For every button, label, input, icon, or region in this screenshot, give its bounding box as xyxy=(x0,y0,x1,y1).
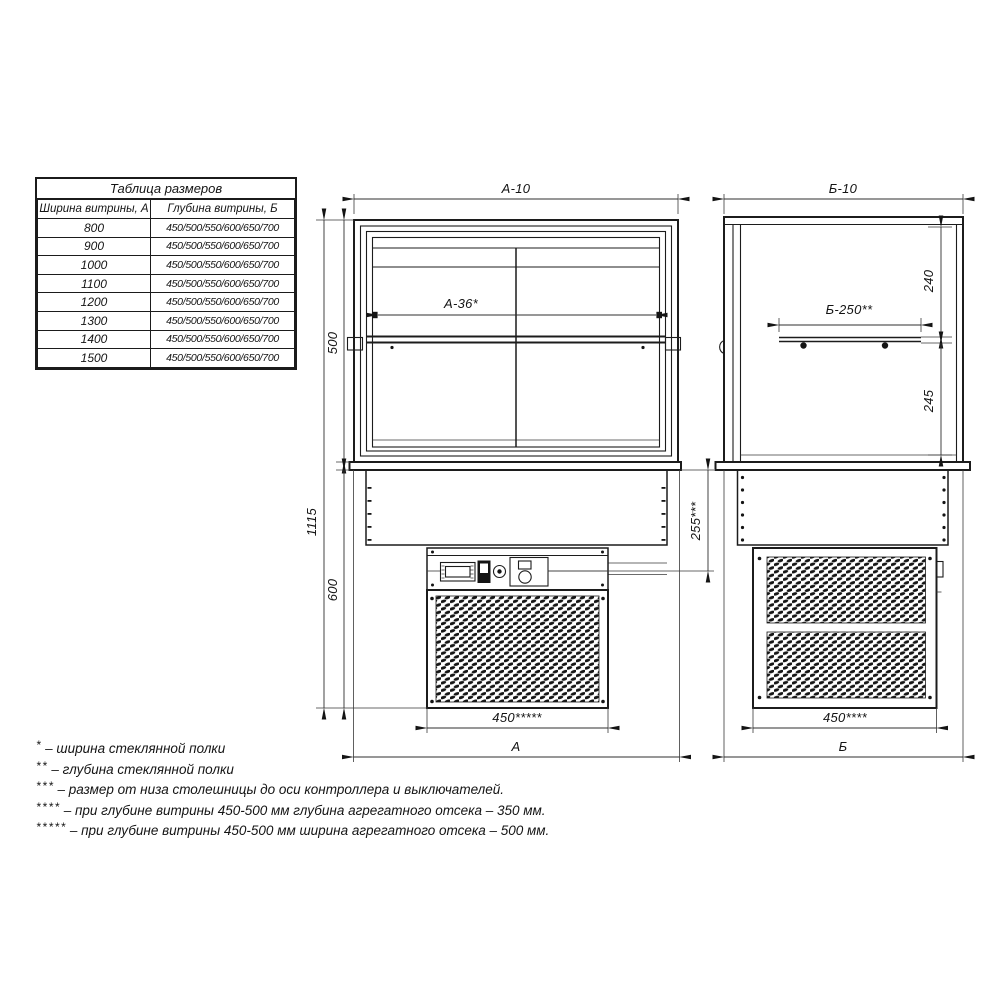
front-view: А-10 А-36* 1115 500 600 255*** 450***** … xyxy=(304,181,714,762)
ventilation-grille-front xyxy=(436,596,599,702)
footnote: *– ширина стеклянной полки xyxy=(36,737,549,758)
glass-case-front xyxy=(354,220,678,462)
table-row: 1000450/500/550/600/650/700 xyxy=(38,256,295,275)
table-row: 1500450/500/550/600/650/700 xyxy=(38,349,295,368)
indicator-button xyxy=(494,566,506,578)
base-body-front xyxy=(366,470,667,575)
dim-500: 500 xyxy=(325,331,340,354)
side-view: Б-10 Б-250** 240 245 450**** Б xyxy=(716,181,971,762)
col-header-depth: Глубина витрины, Б xyxy=(151,200,295,219)
dim-b-overall: Б xyxy=(839,739,848,754)
dim-a-36: А-36* xyxy=(443,296,479,311)
footnote: *****– при глубине витрины 450-500 мм ши… xyxy=(36,819,549,840)
dim-a-10: А-10 xyxy=(501,181,531,196)
dim-450-unit-side: 450**** xyxy=(823,710,868,725)
glass-shelf-side xyxy=(779,338,921,349)
table-row: 800450/500/550/600/650/700 xyxy=(38,219,295,238)
table-row: 1400450/500/550/600/650/700 xyxy=(38,330,295,349)
dim-b-10: Б-10 xyxy=(829,181,858,196)
ventilation-grille-side-lower xyxy=(767,632,926,698)
dim-245: 245 xyxy=(921,389,936,413)
glass-shelf-front xyxy=(348,337,681,351)
switch-box xyxy=(510,558,548,587)
table-row: 1200450/500/550/600/650/700 xyxy=(38,293,295,312)
table-row: 900450/500/550/600/650/700 xyxy=(38,237,295,256)
table-row: 1100450/500/550/600/650/700 xyxy=(38,274,295,293)
cooling-unit-front xyxy=(427,590,608,708)
dim-600: 600 xyxy=(325,578,340,601)
dimensions-table: Таблица размеров Ширина витрины, А Глуби… xyxy=(35,177,297,370)
glass-case-side xyxy=(720,217,963,462)
dim-450-unit-front: 450***** xyxy=(492,710,542,725)
cooling-unit-side xyxy=(753,548,943,708)
countertop-side xyxy=(716,462,971,470)
footnote: **– глубина стеклянной полки xyxy=(36,758,549,779)
table-title: Таблица размеров xyxy=(37,179,295,199)
dim-240: 240 xyxy=(921,269,936,293)
drawing-canvas: А-10 А-36* 1115 500 600 255*** 450***** … xyxy=(0,0,1000,1000)
col-header-width: Ширина витрины, А xyxy=(38,200,151,219)
control-panel xyxy=(427,548,608,590)
controller-display xyxy=(441,563,476,582)
footnote: ***– размер от низа столешницы до оси ко… xyxy=(36,778,549,799)
dim-b-250: Б-250** xyxy=(826,302,873,317)
power-switch xyxy=(478,561,491,584)
table-header-row: Ширина витрины, А Глубина витрины, Б xyxy=(38,200,295,219)
table-row: 1300450/500/550/600/650/700 xyxy=(38,311,295,330)
technical-drawing-page: А-10 А-36* 1115 500 600 255*** 450***** … xyxy=(0,0,1000,1000)
footnotes: *– ширина стеклянной полки **– глубина с… xyxy=(36,737,549,840)
dim-255: 255*** xyxy=(688,501,703,541)
countertop-front xyxy=(350,462,682,470)
base-body-side xyxy=(738,470,949,545)
footnote: ****– при глубине витрины 450-500 мм глу… xyxy=(36,799,549,820)
ventilation-grille-side-upper xyxy=(767,557,926,623)
dim-1115: 1115 xyxy=(304,507,319,536)
